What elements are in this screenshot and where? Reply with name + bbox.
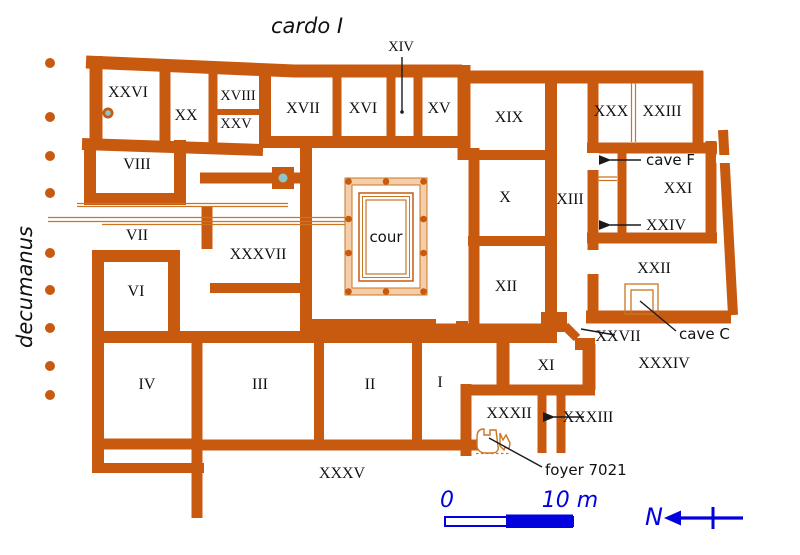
foyer-leader — [489, 438, 542, 467]
room-label-xxiv: XXIV — [646, 217, 686, 234]
room-label-xxx: XXX — [594, 103, 629, 120]
courtyard-label: cour — [369, 228, 403, 246]
room-label-xxxv: XXXV — [319, 465, 366, 482]
room-label-iv: IV — [139, 376, 156, 393]
room-label-xii: XII — [495, 278, 517, 295]
room-label-xv: XV — [427, 100, 451, 117]
room-label-xxv: XXV — [220, 116, 252, 132]
room-label-xx: XX — [174, 107, 198, 124]
site-plan: cardo I decumanus XIV XXVI XX XVIII XXV … — [0, 0, 800, 555]
room-label-xvii: XVII — [286, 100, 320, 117]
decumanus-column-dots — [45, 58, 55, 400]
room-label-xxvi: XXVI — [108, 84, 148, 101]
foyer-label: foyer 7021 — [545, 461, 627, 479]
room-label-xviii: XVIII — [220, 88, 256, 104]
room-label-xvi: XVI — [349, 100, 377, 117]
cave-f-label: cave F — [646, 151, 695, 169]
north-label: N — [645, 503, 663, 531]
room-label-i: I — [437, 374, 442, 391]
room-label-viii: VIII — [123, 156, 151, 173]
room-label-xi: XI — [538, 357, 555, 374]
room-label-ii: II — [365, 376, 376, 393]
room-label-xxi: XXI — [664, 180, 692, 197]
foyer-outline — [476, 429, 510, 454]
room-label-xiv: XIV — [388, 39, 414, 55]
room-label-vi: VI — [128, 283, 145, 300]
room-label-iii: III — [252, 376, 268, 393]
plan-svg: cardo I decumanus XIV XXVI XX XVIII XXV … — [0, 0, 800, 555]
room-label-xxxvii: XXXVII — [230, 246, 287, 263]
scale-ten-label: 10 m — [542, 488, 598, 513]
room-label-xxxii: XXXII — [486, 405, 531, 422]
north-arrow: N — [645, 503, 743, 531]
room-label-xiii: XIII — [556, 191, 584, 208]
well-marker — [103, 108, 114, 119]
basin-marker — [279, 174, 288, 183]
room-label-xxii: XXII — [637, 260, 671, 277]
room-label-xxvii: XXVII — [595, 328, 640, 345]
street-label-cardo: cardo I — [271, 14, 343, 38]
scale-bar: 0 10 m — [440, 488, 598, 528]
street-label-decumanus: decumanus — [13, 226, 37, 348]
cave-c-outline — [625, 284, 658, 314]
room-label-xxxiv: XXXIV — [638, 355, 690, 372]
room-label-xxiii: XXIII — [642, 103, 681, 120]
room-label-vii: VII — [126, 227, 148, 244]
room-label-xix: XIX — [495, 109, 524, 126]
room-label-xxxiii: XXXIII — [563, 409, 614, 426]
room-label-x: X — [499, 189, 511, 206]
scale-zero-label: 0 — [440, 488, 454, 513]
cave-c-label: cave C — [679, 325, 730, 343]
thin-wall-lines — [597, 83, 636, 181]
